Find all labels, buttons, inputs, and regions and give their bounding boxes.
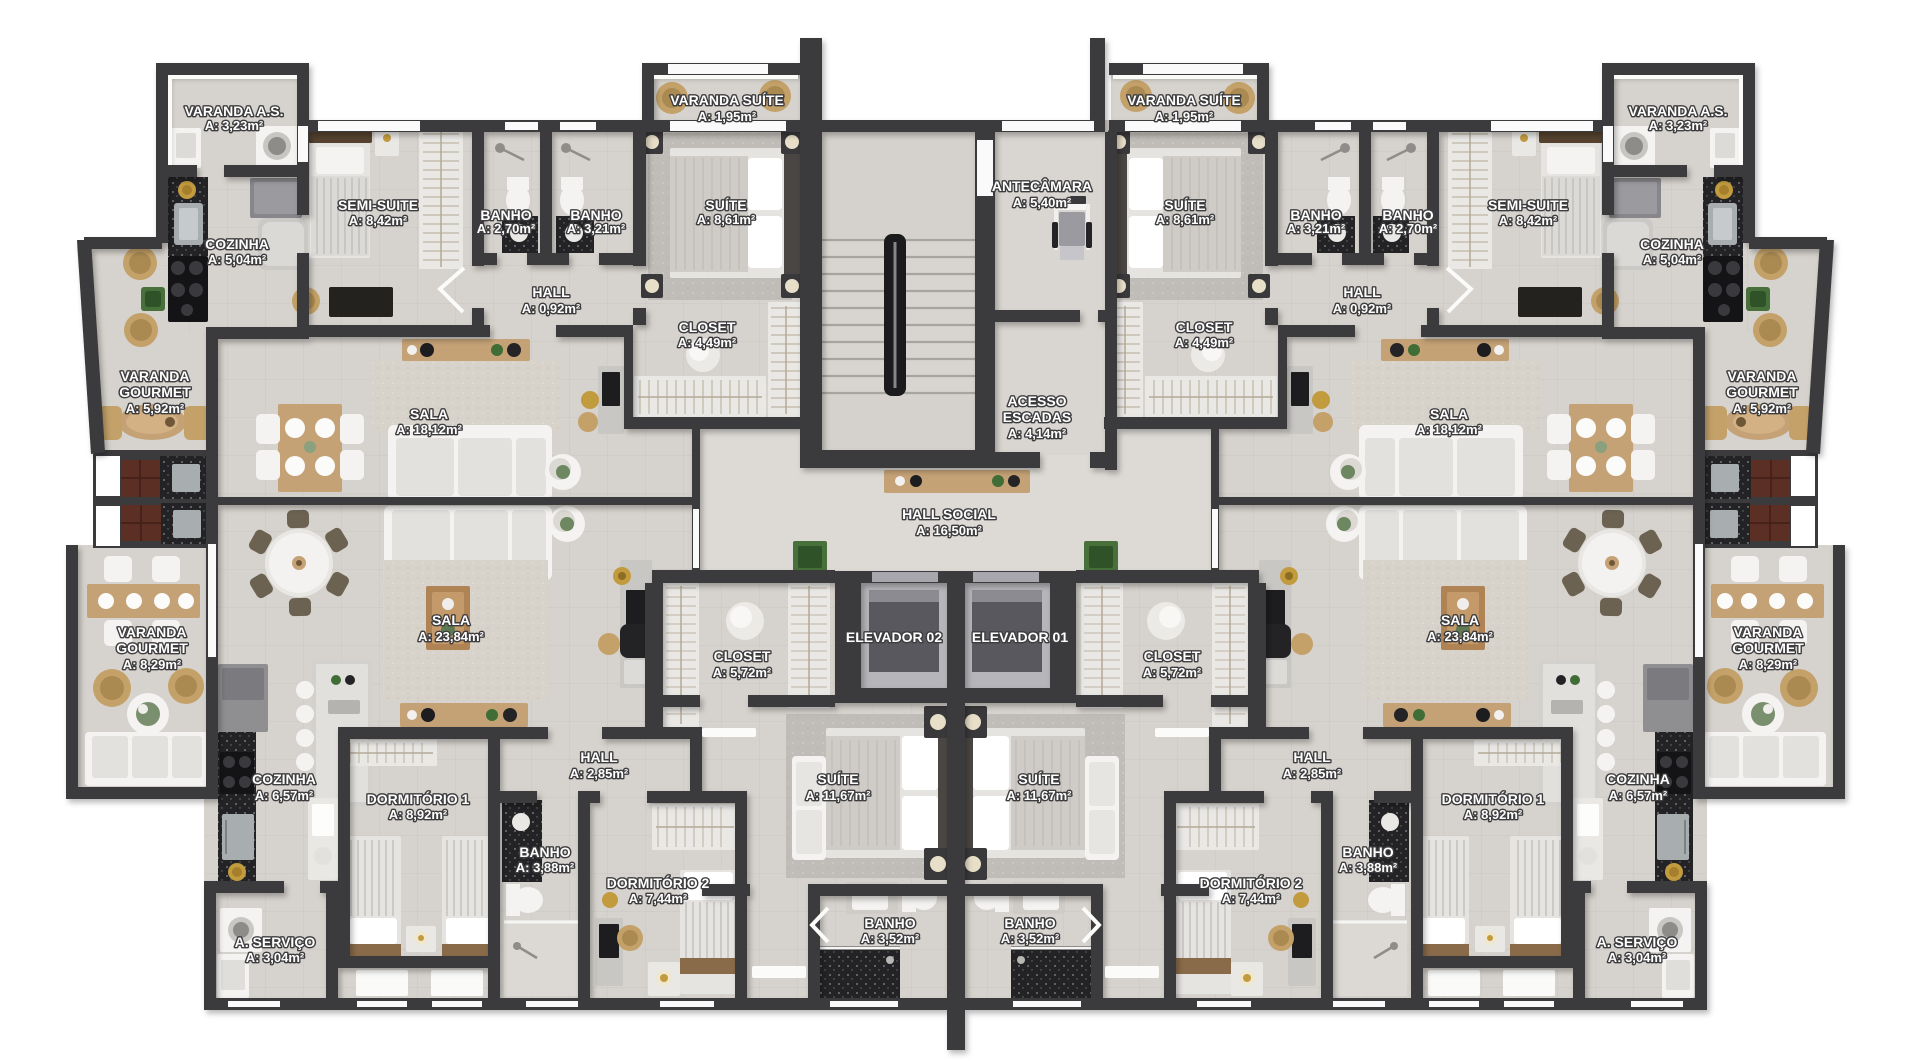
- svg-text:DORMITÓRIO 1: DORMITÓRIO 1: [367, 790, 470, 807]
- svg-text:A: 5,72m²: A: 5,72m²: [1143, 665, 1202, 680]
- svg-text:A: 5,92m²: A: 5,92m²: [126, 401, 185, 416]
- svg-text:BANHO: BANHO: [864, 915, 915, 931]
- svg-text:COZINHA: COZINHA: [252, 771, 316, 787]
- svg-text:CLOSET: CLOSET: [679, 319, 736, 335]
- svg-text:A: 3,04m²: A: 3,04m²: [246, 950, 305, 965]
- svg-text:A: 4,49m²: A: 4,49m²: [1175, 335, 1234, 350]
- svg-text:A: 4,14m²: A: 4,14m²: [1008, 426, 1067, 441]
- svg-text:ESCADAS: ESCADAS: [1003, 409, 1071, 425]
- svg-text:SALA: SALA: [410, 406, 448, 422]
- svg-text:BANHO: BANHO: [1004, 915, 1055, 931]
- svg-text:SUÍTE: SUÍTE: [1164, 197, 1205, 213]
- svg-text:HALL SOCIAL: HALL SOCIAL: [902, 506, 996, 522]
- svg-text:VARANDA: VARANDA: [1728, 368, 1797, 384]
- svg-text:A: 3,52m²: A: 3,52m²: [861, 931, 920, 946]
- svg-text:CLOSET: CLOSET: [714, 648, 771, 664]
- svg-text:A: 3,23m²: A: 3,23m²: [1649, 118, 1708, 133]
- svg-text:SEMI-SUITE: SEMI-SUITE: [338, 197, 418, 213]
- svg-text:A: 8,61m²: A: 8,61m²: [697, 212, 756, 227]
- svg-text:BANHO: BANHO: [1342, 844, 1393, 860]
- svg-text:SUÍTE: SUÍTE: [1018, 771, 1059, 787]
- svg-text:A: 7,44m²: A: 7,44m²: [629, 891, 688, 906]
- svg-text:VARANDA A.S.: VARANDA A.S.: [184, 103, 283, 119]
- svg-text:COZINHA: COZINHA: [205, 236, 269, 252]
- svg-text:VARANDA: VARANDA: [121, 368, 190, 384]
- svg-text:HALL: HALL: [1343, 284, 1381, 300]
- svg-text:A: 18,12m²: A: 18,12m²: [396, 422, 462, 437]
- svg-text:A: 5,04m²: A: 5,04m²: [208, 252, 267, 267]
- svg-text:A: 16,50m²: A: 16,50m²: [916, 523, 982, 538]
- svg-text:A: 5,04m²: A: 5,04m²: [1643, 252, 1702, 267]
- svg-text:GOURMET: GOURMET: [1732, 640, 1804, 656]
- svg-text:SALA: SALA: [432, 612, 470, 628]
- svg-text:COZINHA: COZINHA: [1606, 771, 1670, 787]
- svg-text:A: 8,29m²: A: 8,29m²: [123, 657, 182, 672]
- svg-text:COZINHA: COZINHA: [1640, 236, 1704, 252]
- svg-text:A: 3,88m²: A: 3,88m²: [516, 860, 575, 875]
- svg-text:A: 8,42m²: A: 8,42m²: [349, 213, 408, 228]
- svg-text:ELEVADOR 02: ELEVADOR 02: [846, 629, 942, 645]
- svg-text:ANTECÂMARA: ANTECÂMARA: [992, 177, 1092, 194]
- svg-text:SUÍTE: SUÍTE: [817, 771, 858, 787]
- svg-text:A: 5,92m²: A: 5,92m²: [1733, 401, 1792, 416]
- svg-text:SEMI-SUITE: SEMI-SUITE: [1488, 197, 1568, 213]
- svg-text:A: 0,92m²: A: 0,92m²: [522, 301, 581, 316]
- svg-text:A: 1,95m²: A: 1,95m²: [698, 109, 757, 124]
- svg-text:ACESSO: ACESSO: [1007, 393, 1066, 409]
- svg-text:A: 4,49m²: A: 4,49m²: [678, 335, 737, 350]
- svg-text:A. SERVIÇO: A. SERVIÇO: [1597, 934, 1678, 950]
- svg-text:VARANDA: VARANDA: [1734, 624, 1803, 640]
- svg-text:A: 3,21m²: A: 3,21m²: [567, 221, 626, 236]
- svg-text:A: 5,40m²: A: 5,40m²: [1013, 195, 1072, 210]
- svg-text:CLOSET: CLOSET: [1144, 648, 1201, 664]
- svg-text:A: 3,23m²: A: 3,23m²: [205, 118, 264, 133]
- svg-text:A: 6,57m²: A: 6,57m²: [255, 788, 314, 803]
- svg-text:SALA: SALA: [1441, 612, 1479, 628]
- svg-text:A: 8,92m²: A: 8,92m²: [389, 807, 448, 822]
- svg-text:A: 3,21m²: A: 3,21m²: [1287, 221, 1346, 236]
- svg-text:DORMITÓRIO 2: DORMITÓRIO 2: [607, 874, 710, 891]
- svg-text:A: 6,57m²: A: 6,57m²: [1609, 788, 1668, 803]
- svg-text:A: 7,44m²: A: 7,44m²: [1222, 891, 1281, 906]
- svg-text:A: 8,61m²: A: 8,61m²: [1156, 212, 1215, 227]
- svg-text:A: 11,67m²: A: 11,67m²: [805, 788, 871, 803]
- svg-text:A: 8,29m²: A: 8,29m²: [1739, 657, 1798, 672]
- svg-text:A. SERVIÇO: A. SERVIÇO: [235, 934, 316, 950]
- svg-text:A: 2,85m²: A: 2,85m²: [1283, 766, 1342, 781]
- svg-text:A: 11,67m²: A: 11,67m²: [1006, 788, 1072, 803]
- svg-text:VARANDA: VARANDA: [118, 624, 187, 640]
- svg-text:A: 18,12m²: A: 18,12m²: [1416, 422, 1482, 437]
- svg-text:A: 23,84m²: A: 23,84m²: [1427, 629, 1493, 644]
- svg-text:A: 5,72m²: A: 5,72m²: [713, 665, 772, 680]
- svg-text:HALL: HALL: [1293, 749, 1331, 765]
- svg-text:A: 1,95m²: A: 1,95m²: [1155, 109, 1214, 124]
- svg-text:A: 3,04m²: A: 3,04m²: [1608, 950, 1667, 965]
- svg-text:A: 2,70m²: A: 2,70m²: [477, 221, 536, 236]
- svg-text:A: 3,88m²: A: 3,88m²: [1339, 860, 1398, 875]
- svg-text:A: 23,84m²: A: 23,84m²: [418, 629, 484, 644]
- svg-text:A: 2,70m²: A: 2,70m²: [1379, 221, 1438, 236]
- svg-text:BANHO: BANHO: [519, 844, 570, 860]
- svg-text:A: 8,42m²: A: 8,42m²: [1499, 213, 1558, 228]
- svg-text:GOURMET: GOURMET: [119, 384, 191, 400]
- svg-text:VARANDA SUÍTE: VARANDA SUÍTE: [670, 92, 784, 108]
- svg-text:A: 0,92m²: A: 0,92m²: [1333, 301, 1392, 316]
- svg-text:DORMITÓRIO 1: DORMITÓRIO 1: [1442, 790, 1545, 807]
- svg-text:ELEVADOR 01: ELEVADOR 01: [972, 629, 1068, 645]
- svg-text:SALA: SALA: [1430, 406, 1468, 422]
- svg-text:GOURMET: GOURMET: [116, 640, 188, 656]
- svg-text:A: 3,52m²: A: 3,52m²: [1001, 931, 1060, 946]
- svg-text:HALL: HALL: [532, 284, 570, 300]
- svg-text:A: 8,92m²: A: 8,92m²: [1464, 807, 1523, 822]
- svg-text:GOURMET: GOURMET: [1726, 384, 1798, 400]
- svg-text:DORMITÓRIO 2: DORMITÓRIO 2: [1200, 874, 1303, 891]
- svg-text:CLOSET: CLOSET: [1176, 319, 1233, 335]
- svg-text:HALL: HALL: [580, 749, 618, 765]
- svg-text:VARANDA SUÍTE: VARANDA SUÍTE: [1127, 92, 1241, 108]
- svg-text:A: 2,85m²: A: 2,85m²: [570, 766, 629, 781]
- svg-text:VARANDA A.S.: VARANDA A.S.: [1628, 103, 1727, 119]
- svg-text:SUÍTE: SUÍTE: [705, 197, 746, 213]
